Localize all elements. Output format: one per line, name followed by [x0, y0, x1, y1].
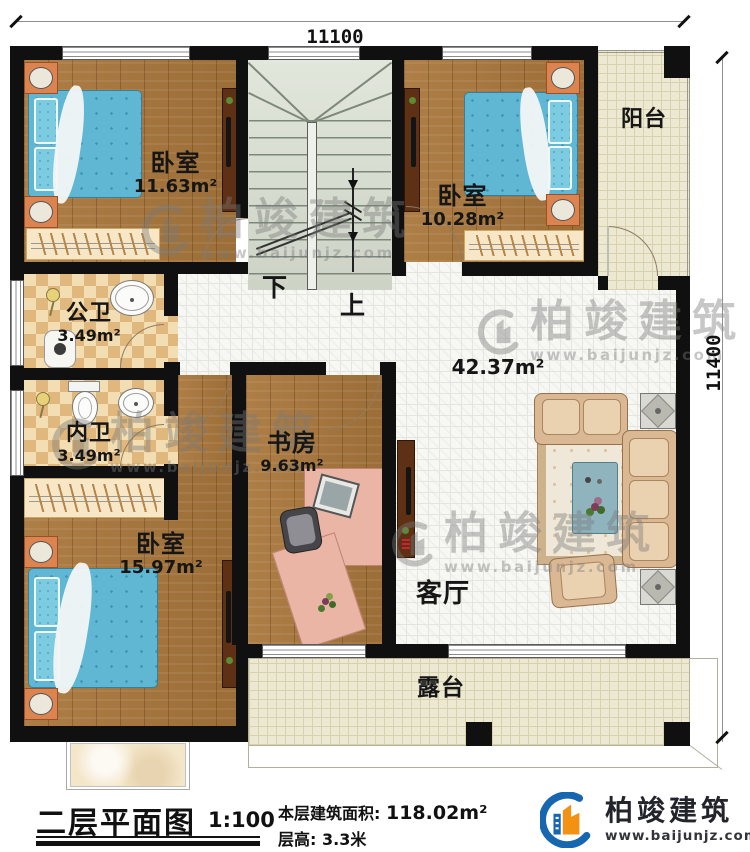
sink	[118, 388, 154, 418]
wall	[462, 262, 598, 276]
door-leaf	[607, 226, 609, 276]
wall	[658, 276, 690, 290]
floor-area-value: 118.02m²	[386, 802, 487, 824]
nightstand	[24, 688, 58, 720]
closet	[464, 230, 584, 261]
wall	[10, 262, 248, 274]
pillow	[548, 146, 572, 190]
wall	[164, 362, 180, 375]
stair-center-rail	[307, 122, 317, 290]
label-living: 客厅	[408, 580, 478, 609]
pillow	[34, 98, 58, 144]
company-logo-icon	[540, 792, 596, 848]
shower-head	[36, 392, 50, 406]
tv-cabinet	[397, 440, 415, 558]
window	[268, 46, 360, 60]
coffee-table	[572, 462, 618, 534]
wall	[626, 644, 690, 658]
stair-arrow-head	[348, 180, 358, 190]
window	[62, 46, 190, 60]
bed	[28, 90, 142, 198]
label-public-bath: 公卫 3.49m²	[48, 302, 130, 345]
nightstand	[546, 194, 580, 226]
plant-pot	[322, 598, 329, 605]
armchair	[548, 553, 618, 609]
floor-height-label: 层高:	[278, 830, 316, 849]
plan-scale: 1:100	[208, 808, 275, 832]
shower-head	[46, 288, 60, 302]
floor-plan-canvas: 柏竣建筑 www.baijunjz.com 柏竣建筑 www.baijunjz.…	[0, 0, 750, 852]
terrace-pillar	[664, 722, 690, 746]
ceiling-lamp	[640, 569, 676, 605]
stair-arrow-head	[348, 232, 358, 242]
bed	[464, 92, 578, 196]
wall	[366, 644, 448, 658]
label-balcony: 阳台	[598, 108, 690, 133]
pillow	[548, 100, 572, 144]
label-stair-up: 上	[338, 292, 368, 320]
floor-area-label: 本层建筑面积:	[278, 804, 380, 823]
window	[10, 280, 24, 366]
wall	[10, 368, 178, 380]
table-flowers	[591, 503, 599, 511]
company-logo-brand: 柏竣建筑	[605, 797, 750, 825]
label-stair-down: 下	[260, 274, 290, 302]
window	[10, 390, 24, 476]
title-underline	[36, 836, 260, 838]
wall	[584, 46, 598, 262]
company-logo-url: www.baijunjz.com	[605, 828, 750, 844]
bay-window	[70, 743, 186, 787]
floor-height-line: 层高: 3.3米	[278, 826, 366, 850]
dimension-top: 11100	[297, 26, 373, 48]
closet	[24, 478, 166, 518]
wall	[164, 274, 178, 316]
wall	[392, 46, 404, 262]
title-underline	[36, 841, 260, 846]
stair-treads	[249, 120, 391, 290]
wall	[10, 726, 236, 742]
dimension-line-top	[15, 21, 685, 22]
label-bedroom-tr: 卧室 10.28m²	[415, 183, 510, 230]
wall	[380, 362, 396, 375]
label-bedroom-tl: 卧室 11.63m²	[128, 150, 223, 197]
label-study: 书房 9.63m²	[248, 430, 336, 475]
wall	[382, 375, 396, 645]
window	[448, 644, 626, 658]
office-chair	[278, 505, 323, 555]
company-logo: 柏竣建筑 www.baijunjz.com	[540, 792, 750, 848]
label-private-bath: 内卫 3.49m²	[44, 422, 134, 465]
closet	[26, 228, 160, 260]
window	[262, 644, 366, 658]
wall	[230, 362, 326, 375]
wall	[236, 46, 248, 218]
nightstand	[24, 196, 58, 228]
window	[442, 46, 532, 60]
bed	[28, 568, 158, 688]
sofa-three-seat	[622, 430, 678, 568]
nightstand	[24, 536, 58, 568]
dimension-right: 11400	[703, 325, 725, 401]
wall	[676, 290, 690, 658]
nightstand	[24, 62, 58, 94]
label-bedroom-bl: 卧室 15.97m²	[112, 531, 210, 578]
pillow	[34, 577, 60, 627]
wall	[598, 276, 608, 290]
ceiling-lamp	[640, 393, 676, 429]
floor-area-line: 本层建筑面积: 118.02m²	[278, 800, 487, 824]
nightstand	[546, 62, 580, 94]
balcony-corner-pillar	[664, 46, 690, 78]
wall	[236, 466, 248, 742]
wall	[190, 46, 268, 60]
label-terrace: 露台	[406, 676, 476, 702]
terrace-pillar	[466, 722, 492, 746]
wall	[392, 262, 406, 276]
sofa-two-seat	[534, 393, 628, 445]
label-living-area: 42.37m²	[448, 356, 548, 378]
floor-height-value: 3.3米	[322, 830, 366, 849]
